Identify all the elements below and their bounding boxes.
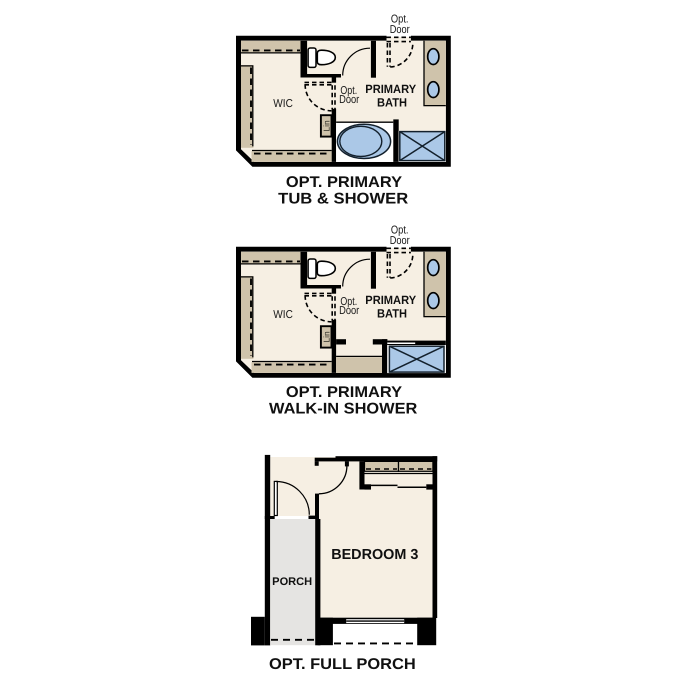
svg-text:Door: Door <box>390 235 410 247</box>
svg-text:WALK-IN SHOWER: WALK-IN SHOWER <box>269 401 417 418</box>
svg-text:PRIMARY: PRIMARY <box>365 293 416 307</box>
svg-text:Door: Door <box>339 305 359 317</box>
svg-text:WIC: WIC <box>273 98 293 110</box>
svg-text:OPT. PRIMARY: OPT. PRIMARY <box>286 174 403 191</box>
svg-text:BATH: BATH <box>377 95 407 109</box>
svg-text:Door: Door <box>390 24 410 36</box>
svg-text:WIC: WIC <box>273 309 293 321</box>
svg-text:Lin: Lin <box>321 120 331 132</box>
svg-text:BATH: BATH <box>377 306 407 320</box>
svg-text:TUB & SHOWER: TUB & SHOWER <box>278 191 408 208</box>
svg-text:Lin: Lin <box>321 331 331 343</box>
svg-text:OPT. FULL PORCH: OPT. FULL PORCH <box>269 656 416 673</box>
svg-text:Door: Door <box>339 94 359 106</box>
svg-text:BEDROOM 3: BEDROOM 3 <box>331 547 418 563</box>
svg-text:OPT. PRIMARY: OPT. PRIMARY <box>286 384 403 401</box>
svg-text:PRIMARY: PRIMARY <box>365 82 416 96</box>
svg-text:PORCH: PORCH <box>272 576 312 588</box>
